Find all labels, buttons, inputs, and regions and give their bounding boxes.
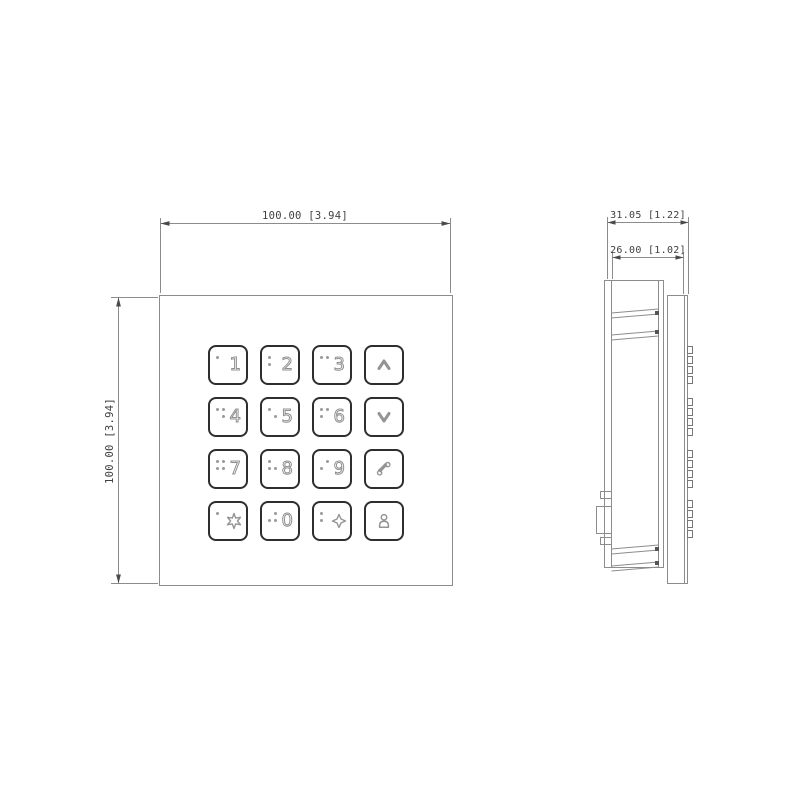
braille-dot bbox=[320, 519, 323, 522]
keypad-button-4: 4 bbox=[208, 397, 248, 437]
keypad-button-7: 7 bbox=[208, 449, 248, 489]
keypad-button-9: 9 bbox=[312, 449, 352, 489]
chevron-down-icon bbox=[374, 407, 394, 427]
side-depth-box-label: 26.00 [1.02] bbox=[610, 245, 686, 256]
star6-icon bbox=[225, 512, 243, 530]
person-icon bbox=[374, 511, 394, 531]
side-view-mounting-bracket-top bbox=[612, 309, 660, 340]
braille-dot bbox=[320, 356, 323, 359]
braille-dot bbox=[320, 512, 323, 515]
braille-dot bbox=[320, 415, 323, 418]
braille-dot bbox=[268, 519, 271, 522]
front-height-dimension-label: 100.00 [3.94] bbox=[104, 398, 116, 484]
keypad-button-call bbox=[364, 449, 404, 489]
braille-dot bbox=[274, 415, 277, 418]
chevron-up-icon bbox=[374, 355, 394, 375]
keypad-button-star bbox=[208, 501, 248, 541]
braille-dot bbox=[274, 519, 277, 522]
key-digit-label: 9 bbox=[334, 460, 345, 478]
keypad-button-6: 6 bbox=[312, 397, 352, 437]
side-view-back-box bbox=[605, 281, 664, 568]
side-view-front-panel bbox=[668, 296, 688, 584]
braille-dot bbox=[326, 408, 329, 411]
front-height-dimension: 100.00 [3.94] bbox=[104, 298, 158, 584]
braille-dot bbox=[274, 512, 277, 515]
braille-dot bbox=[326, 356, 329, 359]
star4-icon bbox=[331, 513, 347, 529]
keypad-button-up bbox=[364, 345, 404, 385]
braille-dot bbox=[216, 356, 219, 359]
braille-dot bbox=[222, 467, 225, 470]
braille-dot bbox=[216, 460, 219, 463]
keypad-button-0: 0 bbox=[260, 501, 300, 541]
key-digit-label: 5 bbox=[282, 408, 293, 426]
keypad-button-2: 2 bbox=[260, 345, 300, 385]
side-view-button-bumps bbox=[688, 347, 693, 538]
braille-dot bbox=[216, 512, 219, 515]
braille-dot bbox=[268, 467, 271, 470]
braille-dot bbox=[268, 356, 271, 359]
braille-dot bbox=[222, 460, 225, 463]
braille-dot bbox=[222, 408, 225, 411]
key-digit-label: 8 bbox=[282, 460, 293, 478]
key-digit-label: 4 bbox=[230, 408, 241, 426]
key-digit-label: 7 bbox=[230, 460, 241, 478]
key-digit-label: 1 bbox=[230, 356, 241, 374]
key-digit-label: 6 bbox=[334, 408, 345, 426]
keypad-button-8: 8 bbox=[260, 449, 300, 489]
keypad-button-1: 1 bbox=[208, 345, 248, 385]
braille-dot bbox=[222, 415, 225, 418]
key-digit-label: 3 bbox=[334, 356, 345, 374]
braille-dot bbox=[268, 460, 271, 463]
keypad-button-person bbox=[364, 501, 404, 541]
phone-icon bbox=[374, 459, 394, 479]
braille-dot bbox=[274, 467, 277, 470]
key-digit-label: 0 bbox=[282, 512, 293, 530]
technical-drawing-page: 100.00 [3.94] 100.00 [3.94] 31.05 [1.22] bbox=[0, 0, 800, 800]
braille-dot bbox=[320, 467, 323, 470]
side-depth-total-label: 31.05 [1.22] bbox=[610, 210, 686, 221]
front-width-dimension: 100.00 [3.94] bbox=[161, 210, 451, 293]
braille-dot bbox=[326, 460, 329, 463]
keypad-button-down bbox=[364, 397, 404, 437]
keypad-button-hash bbox=[312, 501, 352, 541]
front-width-dimension-label: 100.00 [3.94] bbox=[262, 210, 348, 222]
keypad-grid: 1234567890 bbox=[208, 345, 404, 541]
key-digit-label: 2 bbox=[282, 356, 293, 374]
braille-dot bbox=[268, 408, 271, 411]
braille-dot bbox=[320, 408, 323, 411]
side-depth-dimension-box: 26.00 [1.02] bbox=[610, 245, 686, 294]
keypad-button-5: 5 bbox=[260, 397, 300, 437]
braille-dot bbox=[216, 408, 219, 411]
braille-dot bbox=[216, 467, 219, 470]
braille-dot bbox=[268, 363, 271, 366]
keypad-button-3: 3 bbox=[312, 345, 352, 385]
